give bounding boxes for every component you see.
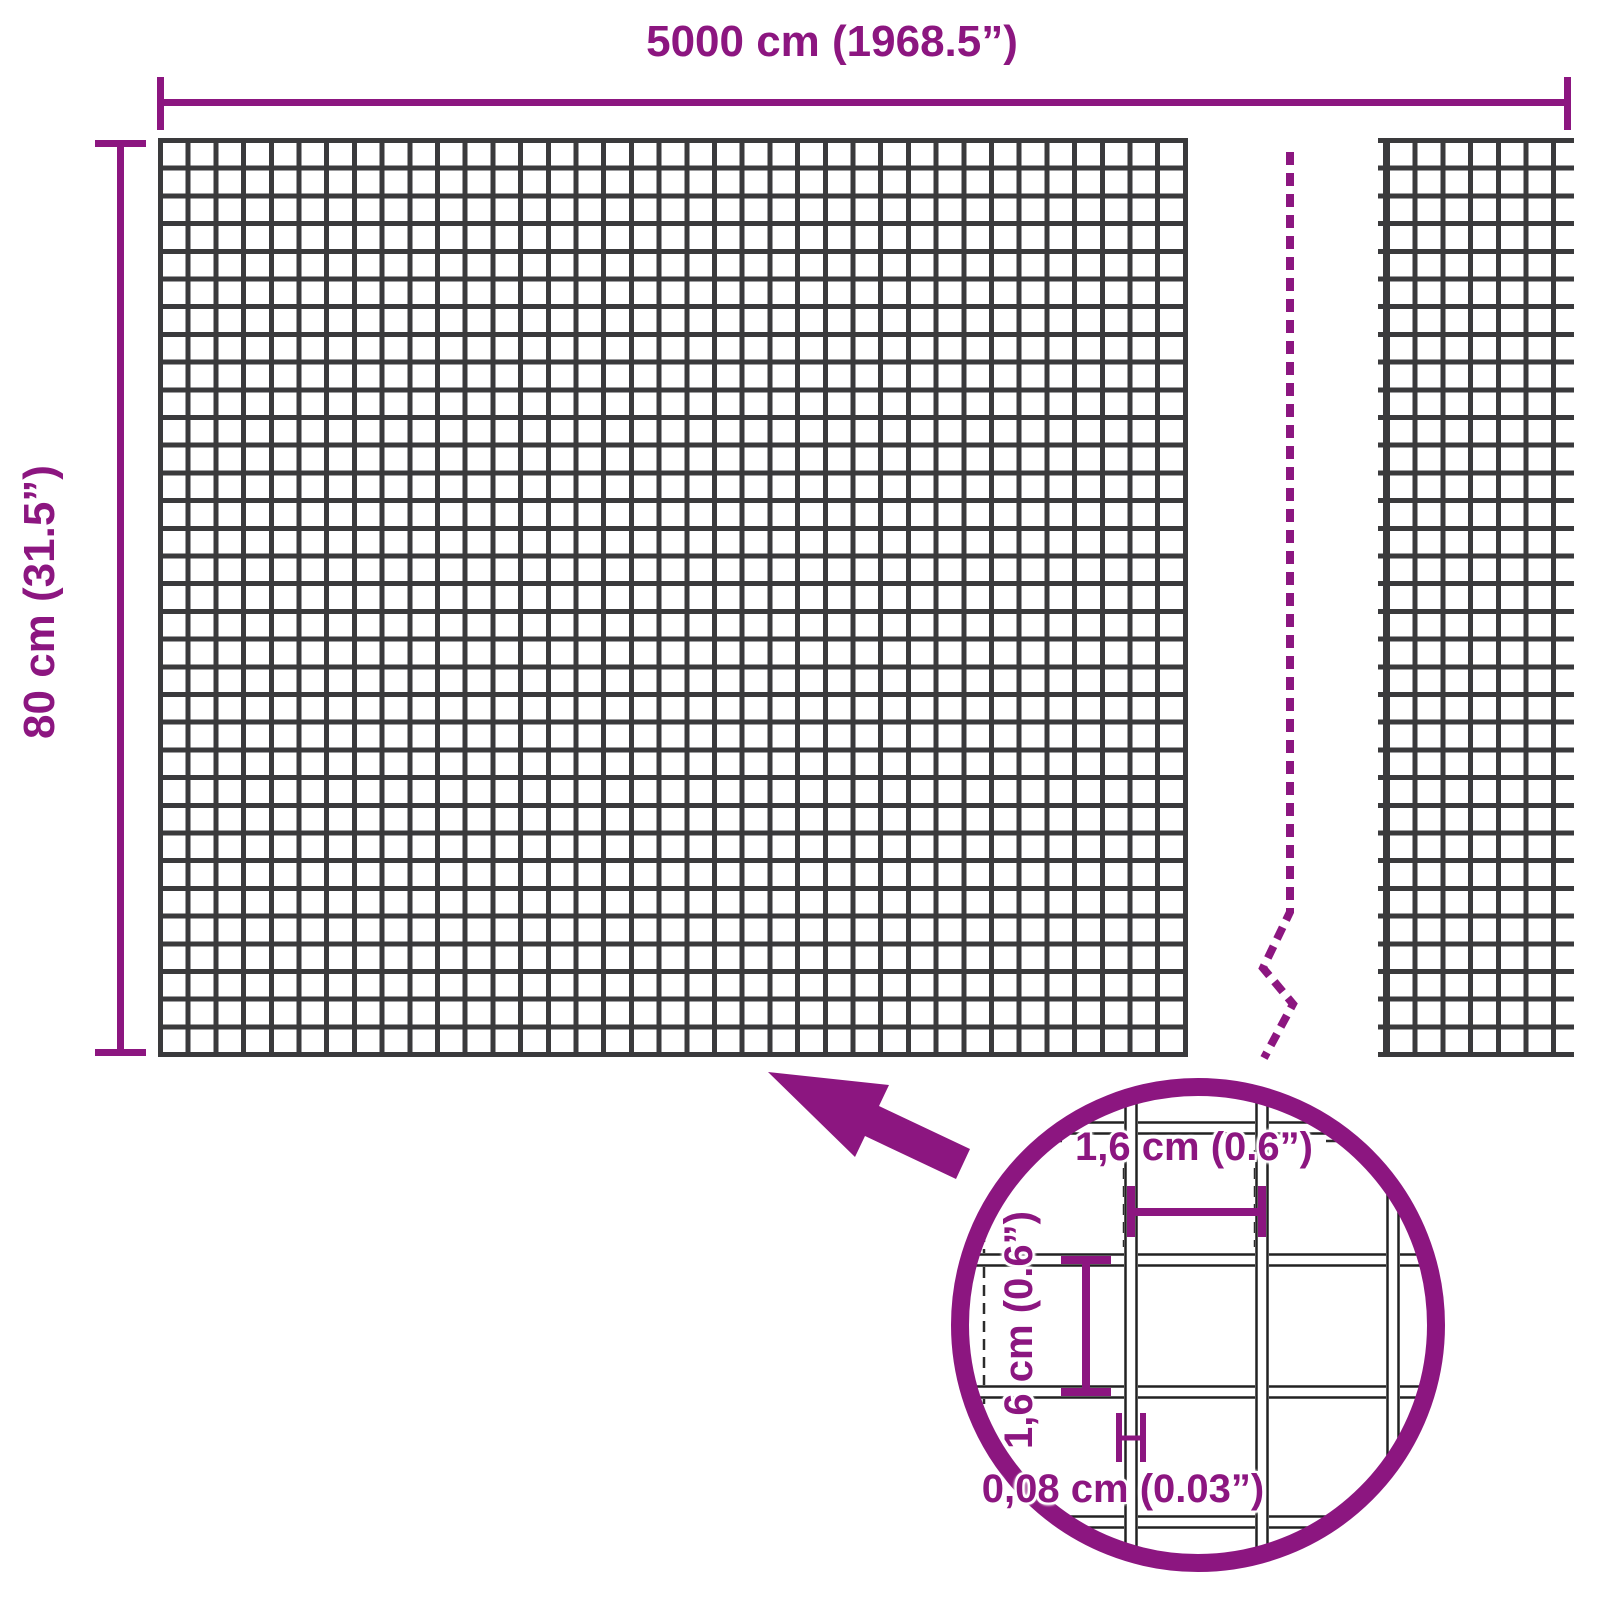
lens-mesh-height-label: 1,6 cm (0.6”) xyxy=(999,1211,1039,1449)
magnifier-arrow-icon xyxy=(768,1072,970,1179)
diagram-canvas: 5000 cm (1968.5”) 80 cm (31.5”) xyxy=(0,0,1600,1600)
overlay-graphics xyxy=(0,0,1600,1600)
break-zigzag-line xyxy=(1263,152,1293,1058)
lens-mesh-width-label: 1,6 cm (0.6”) xyxy=(1075,1127,1313,1167)
lens-wire-thickness-label: 0,08 cm (0.03”) xyxy=(982,1469,1264,1509)
